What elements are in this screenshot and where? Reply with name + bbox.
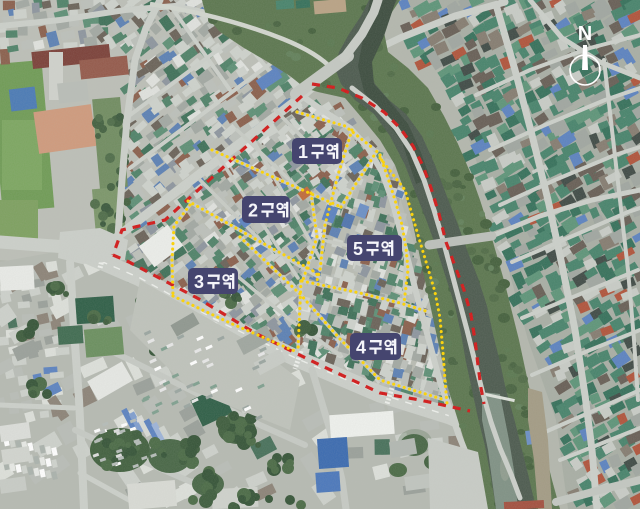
svg-text:3: 3 xyxy=(194,272,204,292)
svg-text:4: 4 xyxy=(356,338,366,358)
svg-text:2: 2 xyxy=(248,201,258,221)
svg-text:5: 5 xyxy=(353,239,363,259)
svg-text:1: 1 xyxy=(298,142,308,162)
svg-text:N: N xyxy=(578,23,592,45)
